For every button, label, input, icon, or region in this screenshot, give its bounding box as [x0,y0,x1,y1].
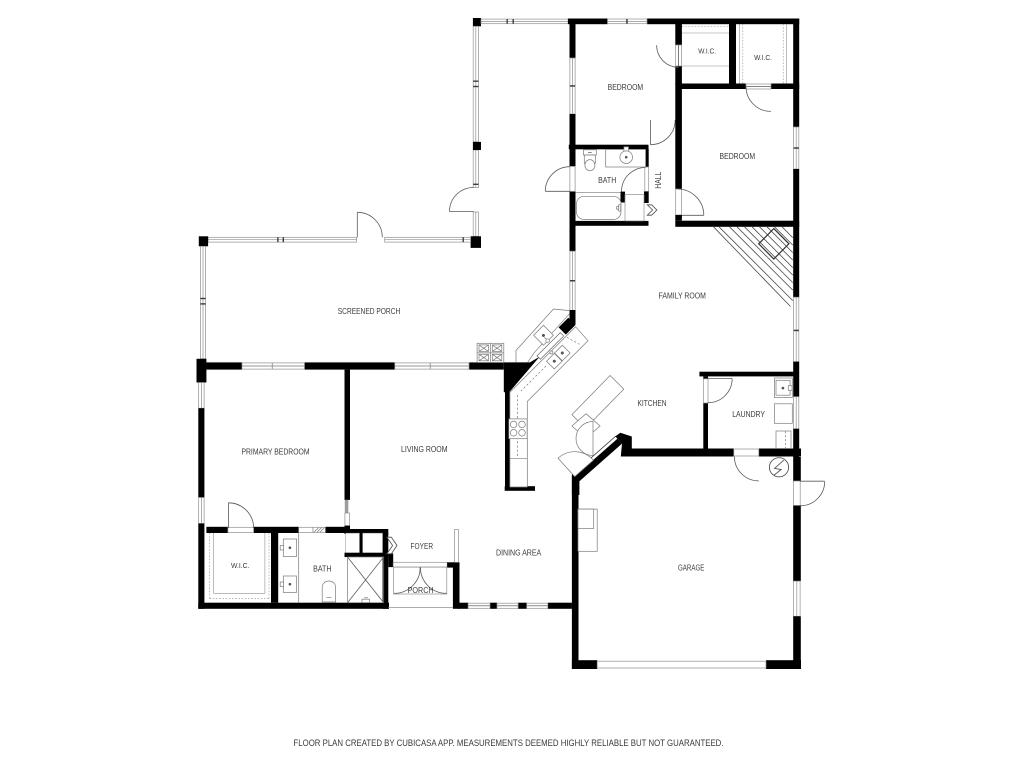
svg-text:LAUNDRY: LAUNDRY [732,410,765,419]
svg-text:W.I.C.: W.I.C. [698,47,716,56]
svg-text:BEDROOM: BEDROOM [608,83,644,92]
svg-text:SCREENED PORCH: SCREENED PORCH [338,307,401,316]
svg-text:KITCHEN: KITCHEN [637,399,666,408]
svg-text:LIVING ROOM: LIVING ROOM [401,445,448,454]
svg-text:FAMILY ROOM: FAMILY ROOM [659,292,707,301]
svg-text:W.I.C.: W.I.C. [231,561,250,570]
svg-text:GARAGE: GARAGE [678,563,705,572]
svg-text:BATH: BATH [313,565,331,574]
svg-text:PORCH: PORCH [408,586,434,595]
svg-text:PRIMARY BEDROOM: PRIMARY BEDROOM [241,448,309,457]
svg-text:W.I.C.: W.I.C. [754,53,772,62]
svg-text:DINING AREA: DINING AREA [496,549,542,558]
svg-text:HALL: HALL [654,171,663,188]
svg-text:FOYER: FOYER [411,542,434,551]
svg-text:BEDROOM: BEDROOM [720,152,756,161]
svg-text:BATH: BATH [598,176,616,185]
svg-text:FLOOR PLAN CREATED BY CUBICASA: FLOOR PLAN CREATED BY CUBICASA APP. MEAS… [294,738,724,748]
